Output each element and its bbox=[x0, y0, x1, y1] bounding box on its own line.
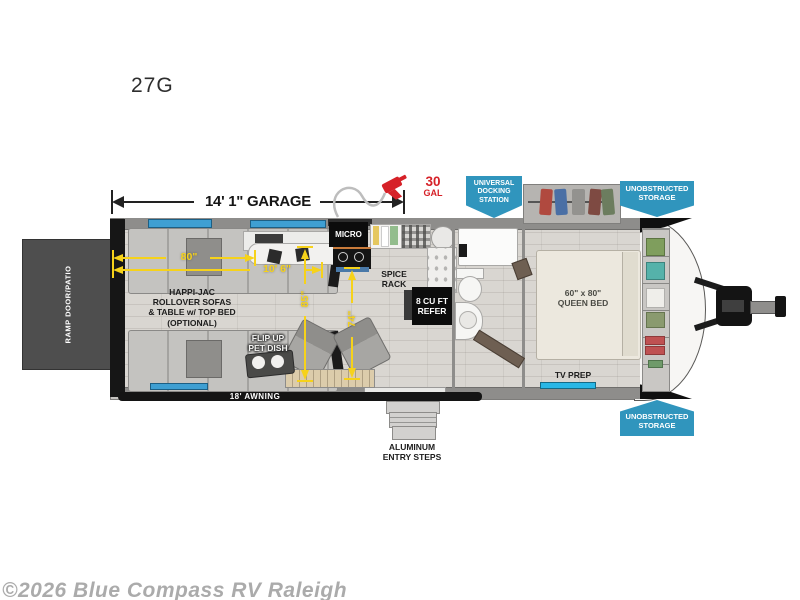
tv-prep-label: TV PREP bbox=[550, 370, 596, 380]
kitchen-window bbox=[250, 220, 326, 228]
dim-85: 85" bbox=[299, 286, 311, 312]
pet-dish-bowl bbox=[252, 356, 265, 369]
fuel-unit: GAL bbox=[416, 189, 450, 199]
refer-side bbox=[404, 290, 412, 320]
ramp-door-label: RAMP DOOR/PATIO bbox=[63, 266, 72, 344]
refrigerator-label: 8 CU FT REFER bbox=[416, 296, 448, 316]
cooktop-controls bbox=[401, 224, 431, 249]
refrigerator: 8 CU FT REFER bbox=[412, 287, 452, 325]
microwave-label: MICRO bbox=[335, 230, 362, 239]
pet-dish-label: FLIP UP PET DISH bbox=[240, 333, 296, 353]
entry-steps-label: ALUMINUM ENTRY STEPS bbox=[368, 442, 456, 462]
oven-window bbox=[336, 267, 369, 272]
queen-bed-label: 60" x 80" QUEEN BED bbox=[546, 288, 620, 308]
shower bbox=[458, 228, 518, 266]
storage-item bbox=[646, 238, 665, 256]
fuel-value: 30 bbox=[416, 175, 450, 189]
storage-item bbox=[648, 360, 663, 368]
sofa-accent-strip bbox=[150, 383, 208, 390]
spice-rack-label: SPICE RACK bbox=[372, 269, 416, 289]
storage-banner-top: UNOBSTRUCTED STORAGE bbox=[620, 181, 694, 217]
storage-banner-bottom: UNOBSTRUCTED STORAGE bbox=[620, 400, 694, 436]
hanging-clothes bbox=[539, 189, 553, 216]
bar-stool bbox=[295, 247, 310, 262]
entry-steps bbox=[392, 426, 436, 440]
storage-item bbox=[646, 262, 665, 280]
pantry-item bbox=[373, 226, 379, 245]
bedroom-wall bbox=[522, 228, 525, 388]
storage-item bbox=[645, 346, 665, 355]
bed-pillows bbox=[622, 252, 638, 356]
hanging-clothes bbox=[588, 189, 602, 216]
shower-faucet bbox=[459, 244, 467, 257]
garage-dimension-label: 14' 1" GARAGE bbox=[194, 193, 322, 210]
hanging-clothes bbox=[572, 189, 585, 215]
dim-80: 80" bbox=[166, 251, 212, 263]
rear-wall bbox=[110, 219, 125, 397]
burner bbox=[338, 252, 348, 262]
fuel-hose bbox=[334, 188, 385, 217]
microwave: MICRO bbox=[329, 222, 368, 247]
storage-item bbox=[646, 312, 665, 328]
pet-dish-bowl bbox=[271, 355, 284, 368]
storage-bench bbox=[285, 369, 375, 388]
fuel-capacity: 30 GAL bbox=[416, 175, 450, 198]
desk-item bbox=[255, 234, 283, 243]
storage-item bbox=[646, 288, 665, 308]
bath-sink-bowl bbox=[459, 311, 477, 329]
ramp-door-patio: RAMP DOOR/PATIO bbox=[22, 239, 114, 370]
hitch-coupler-detail bbox=[722, 300, 744, 312]
garage-window bbox=[148, 219, 212, 228]
floorplan-page: 27G RAMP DOOR/PATIO MOMENTUM HAPPI-JAC R… bbox=[0, 0, 800, 600]
dealer-watermark: ©2026 Blue Compass RV Raleigh bbox=[2, 579, 347, 600]
storage-item bbox=[645, 336, 665, 345]
bar-stool bbox=[267, 249, 282, 264]
dim-10-6: 10' 6" bbox=[250, 263, 304, 275]
burner bbox=[354, 252, 364, 262]
hanging-clothes bbox=[601, 189, 615, 216]
hitch-end bbox=[775, 296, 786, 317]
toilet bbox=[458, 276, 482, 302]
table-bottom bbox=[186, 340, 222, 378]
page-title: 27G bbox=[131, 74, 174, 98]
dim-74: 74" bbox=[346, 306, 358, 332]
docking-station-banner: UNIVERSAL DOCKING STATION bbox=[466, 176, 522, 218]
bar-counter bbox=[248, 243, 340, 265]
pantry-item bbox=[390, 226, 398, 245]
fuel-pump-icon bbox=[381, 173, 413, 203]
tv-prep-strip bbox=[540, 382, 596, 389]
hanging-clothes bbox=[554, 189, 568, 216]
pantry-item bbox=[381, 226, 389, 247]
awning-label: 18' AWNING bbox=[120, 392, 390, 401]
sofa-label: HAPPI-JAC ROLLOVER SOFAS & TABLE w/ TOP … bbox=[136, 287, 248, 328]
